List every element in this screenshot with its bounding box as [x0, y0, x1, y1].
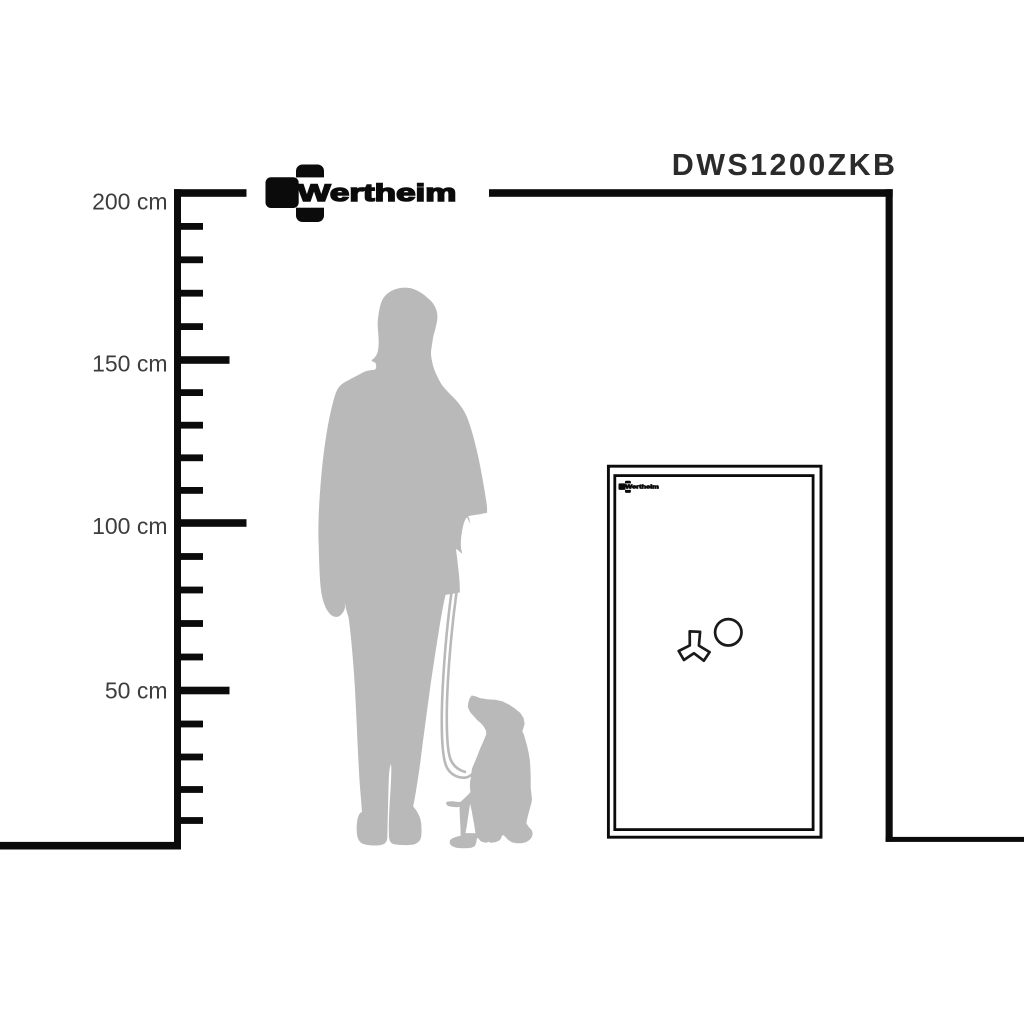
- svg-text:50 cm: 50 cm: [105, 678, 168, 704]
- svg-text:Wertheim: Wertheim: [298, 180, 457, 207]
- svg-text:100 cm: 100 cm: [92, 513, 167, 539]
- svg-text:200 cm: 200 cm: [92, 189, 167, 215]
- svg-text:DWS1200ZKB: DWS1200ZKB: [672, 148, 898, 182]
- svg-text:Wertheim: Wertheim: [625, 484, 659, 490]
- svg-text:150 cm: 150 cm: [92, 351, 167, 377]
